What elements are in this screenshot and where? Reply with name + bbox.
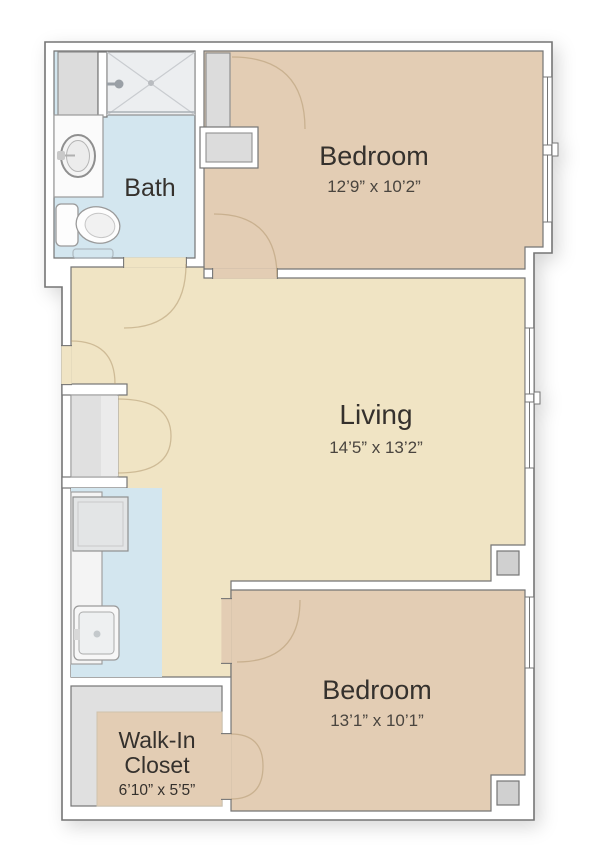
faucet-icon [94, 631, 101, 638]
bath-partition-wall [98, 52, 107, 117]
walk-in-closet-label-line2: Closet [124, 752, 190, 778]
bedroom-top-niche [200, 127, 258, 168]
bedroom-top-dimensions: 12’9” x 10’2” [327, 177, 421, 196]
shower-head-icon [115, 80, 124, 89]
living-dimensions: 14’5” x 13’2” [329, 438, 423, 457]
walk-in-closet-dimensions: 6’10” x 5’5” [119, 782, 196, 799]
hall-closet [62, 384, 127, 488]
bedroom-top-closet [206, 53, 230, 129]
bath-label: Bath [124, 174, 175, 202]
vanity-sink [54, 115, 103, 197]
kitchen-sink [74, 606, 119, 660]
faucet-icon [57, 151, 65, 160]
floor-plan-unit: Bath Bedroom 12’9” x 10’2” Living 14’5” … [45, 42, 558, 820]
linen-closet [58, 52, 98, 117]
bedroom-bottom-dimensions: 13’1” x 10’1” [330, 711, 424, 730]
column [497, 551, 519, 575]
bedroom-top-label: Bedroom [319, 141, 429, 171]
bedroom-bottom-window [525, 597, 534, 668]
kitchen [71, 488, 162, 677]
floor-plan-page: Bath Bedroom 12’9” x 10’2” Living 14’5” … [0, 0, 600, 865]
walk-in-closet-label-line1: Walk-In [118, 727, 195, 753]
living-label: Living [339, 399, 412, 430]
column [497, 781, 519, 805]
range [73, 497, 128, 551]
bedroom-bottom-label: Bedroom [322, 675, 432, 705]
shower [107, 52, 195, 115]
floor-plan: Bath Bedroom 12’9” x 10’2” Living 14’5” … [0, 0, 600, 865]
